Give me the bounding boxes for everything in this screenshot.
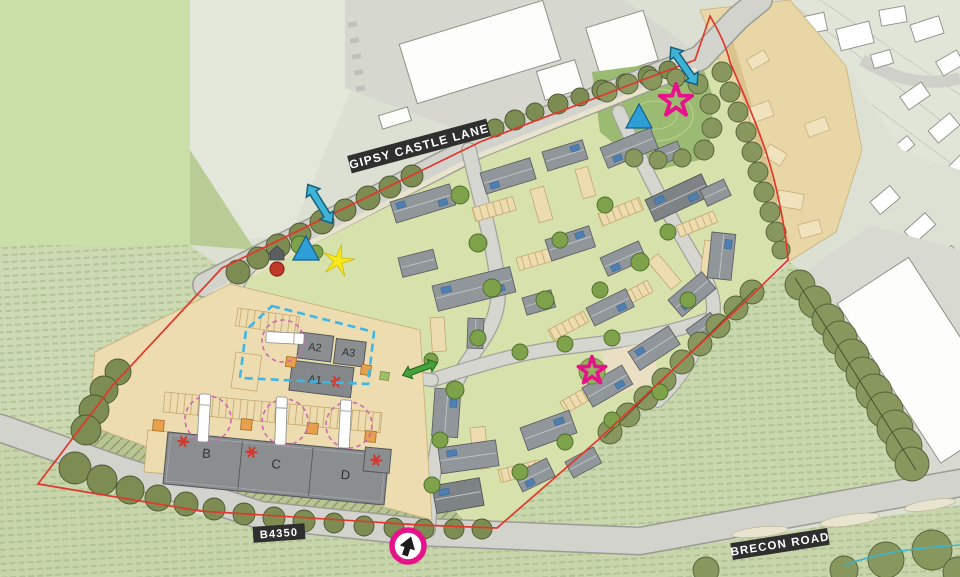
unit-label-a2: A2 <box>307 341 322 355</box>
unit-label-c: C <box>271 456 282 472</box>
masterplan-svg: B C D A2 A3 A1 <box>0 0 960 577</box>
unit-label-d: D <box>340 467 351 483</box>
unit-label-a3: A3 <box>341 346 356 360</box>
masterplan-canvas: B C D A2 A3 A1 <box>0 0 960 577</box>
unit-label-b: B <box>201 445 211 461</box>
site-access-arrow-marker <box>392 530 424 562</box>
flat-green-field <box>0 0 190 245</box>
